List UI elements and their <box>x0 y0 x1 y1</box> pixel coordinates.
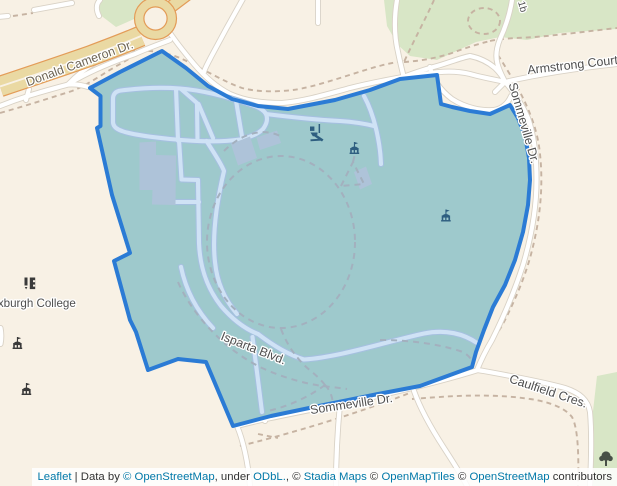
svg-text:Roxburgh College: Roxburgh College <box>0 297 76 310</box>
